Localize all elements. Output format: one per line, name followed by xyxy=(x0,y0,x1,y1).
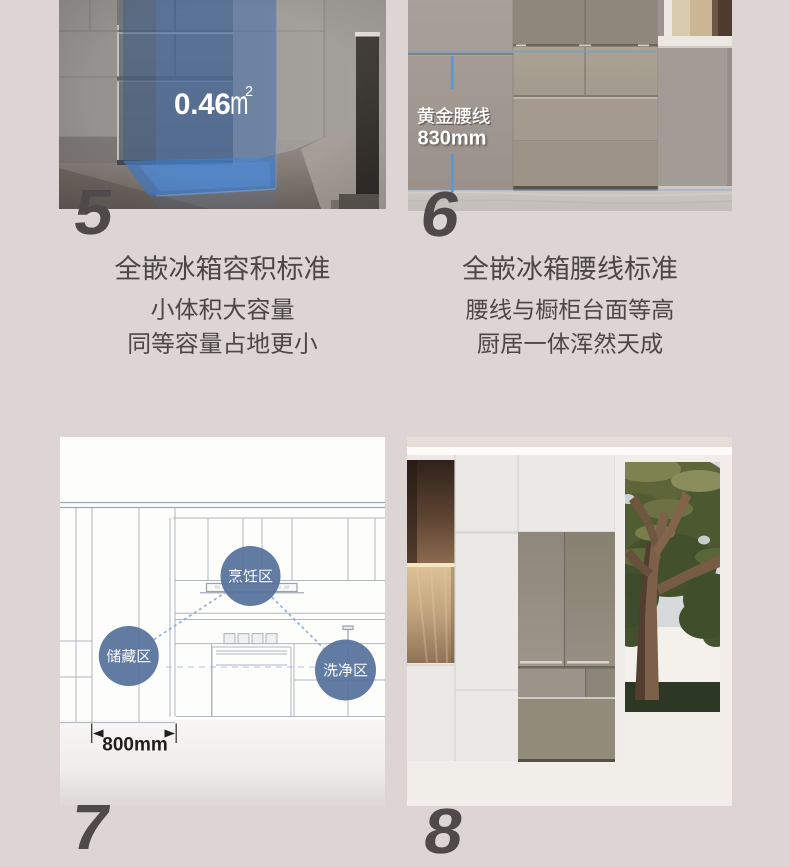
svg-text:830mm: 830mm xyxy=(418,127,487,149)
